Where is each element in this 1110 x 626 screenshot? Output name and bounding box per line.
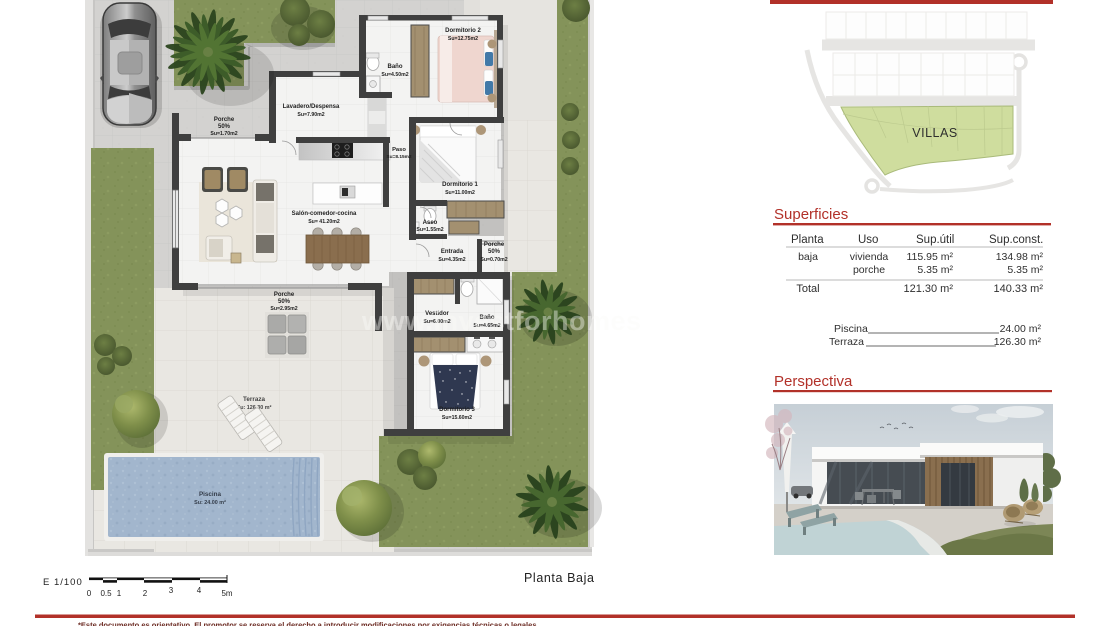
svg-text:0: 0 [87, 589, 92, 598]
svg-text:Su=8.15m2: Su=8.15m2 [386, 154, 412, 160]
svg-text:*Este documento es orientativo: *Este documento es orientativo. El promo… [78, 621, 539, 626]
svg-text:Su=4.50m2: Su=4.50m2 [381, 72, 408, 78]
svg-text:Su=1.55m2: Su=1.55m2 [416, 227, 443, 233]
svg-text:0.5: 0.5 [100, 589, 112, 598]
svg-text:Uso: Uso [858, 234, 878, 246]
svg-text:134.98 m²: 134.98 m² [996, 251, 1044, 263]
svg-text:www.investforhomes: www.investforhomes [361, 306, 642, 336]
svg-text:Su=1.70m2: Su=1.70m2 [210, 131, 237, 137]
svg-text:Total: Total [796, 283, 819, 295]
svg-text:Su: 24.00 m²: Su: 24.00 m² [194, 500, 226, 506]
svg-text:Su=11.00m2: Su=11.00m2 [445, 190, 475, 196]
svg-text:vivienda: vivienda [850, 251, 889, 263]
svg-text:Terraza: Terraza [829, 336, 864, 348]
svg-text:Su=15.60m2: Su=15.60m2 [442, 415, 472, 421]
svg-text:126.30 m²: 126.30 m² [994, 336, 1042, 348]
svg-text:140.33 m²: 140.33 m² [993, 283, 1043, 295]
svg-text:Sup.const.: Sup.const. [989, 234, 1043, 246]
svg-text:4: 4 [197, 586, 202, 595]
svg-text:E 1/100: E 1/100 [43, 577, 83, 588]
svg-text:Piscina: Piscina [834, 323, 868, 335]
svg-text:Porche: Porche [484, 242, 505, 248]
svg-text:Sup.útil: Sup.útil [916, 234, 954, 246]
svg-text:Aseo: Aseo [423, 220, 438, 226]
svg-text:Baño: Baño [388, 64, 403, 70]
svg-text:Planta Baja: Planta Baja [524, 571, 595, 585]
svg-text:Entrada: Entrada [441, 249, 464, 255]
svg-text:50%: 50% [218, 124, 231, 130]
svg-text:Perspectiva: Perspectiva [774, 373, 853, 390]
svg-text:Su=2.95m2: Su=2.95m2 [270, 306, 297, 312]
svg-text:Su=4.35m2: Su=4.35m2 [438, 257, 465, 263]
svg-text:Dormitorio 1: Dormitorio 1 [442, 182, 478, 188]
svg-text:Piscina: Piscina [199, 491, 222, 498]
svg-text:Planta: Planta [791, 234, 824, 246]
svg-text:Dormitorio 3: Dormitorio 3 [439, 407, 475, 413]
svg-text:115.95 m²: 115.95 m² [907, 251, 954, 263]
svg-text:Su=12.75m2: Su=12.75m2 [448, 36, 478, 42]
svg-text:5m: 5m [221, 589, 232, 598]
svg-text:baja: baja [798, 251, 818, 263]
svg-text:50%: 50% [278, 299, 291, 305]
svg-text:24.00 m²: 24.00 m² [1000, 323, 1042, 335]
svg-text:Terraza: Terraza [243, 396, 265, 403]
svg-text:Superficies: Superficies [774, 206, 848, 223]
svg-text:Su= 41.20m2: Su= 41.20m2 [308, 219, 340, 225]
svg-text:Su=0.70m2: Su=0.70m2 [480, 257, 507, 263]
svg-text:Porche: Porche [274, 292, 295, 298]
svg-text:5.35 m²: 5.35 m² [1007, 264, 1043, 276]
svg-text:121.30 m²: 121.30 m² [903, 283, 953, 295]
svg-text:Paso: Paso [392, 147, 406, 153]
svg-text:1: 1 [117, 589, 122, 598]
svg-text:Su=7.90m2: Su=7.90m2 [297, 112, 324, 118]
svg-text:porche: porche [853, 264, 885, 276]
svg-text:Dormitorio 2: Dormitorio 2 [445, 28, 481, 34]
svg-text:Salón-comedor-cocina: Salón-comedor-cocina [292, 211, 357, 217]
svg-text:50%: 50% [488, 249, 501, 255]
svg-text:Porche: Porche [214, 117, 235, 123]
svg-text:VILLAS: VILLAS [912, 126, 957, 140]
svg-text:5.35 m²: 5.35 m² [917, 264, 953, 276]
svg-text:2: 2 [143, 589, 148, 598]
svg-text:3: 3 [169, 586, 174, 595]
svg-text:Lavadero/Despensa: Lavadero/Despensa [283, 104, 340, 110]
